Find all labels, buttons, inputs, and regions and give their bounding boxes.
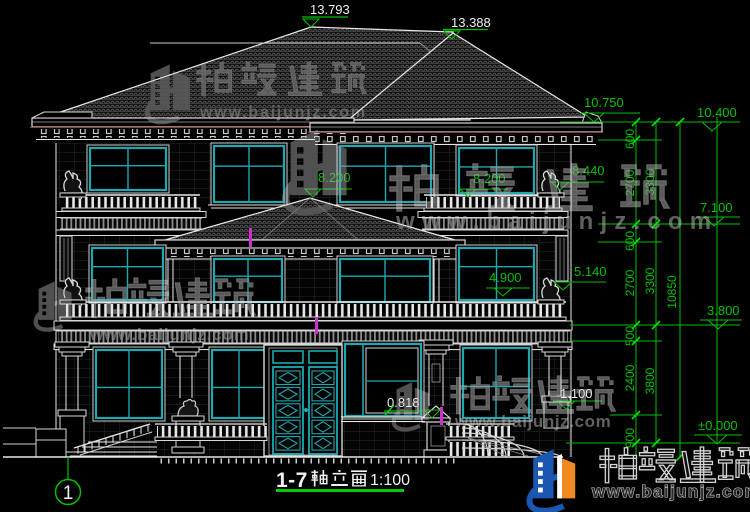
svg-text:www.baijunjz.com: www.baijunjz.com [591, 482, 750, 501]
svg-text:www.baijunjz.com: www.baijunjz.com [395, 208, 718, 235]
svg-text:www.baijunjz.com: www.baijunjz.com [454, 412, 611, 431]
svg-text:3300: 3300 [643, 267, 657, 294]
svg-text:4.900: 4.900 [489, 270, 522, 285]
svg-text:10.400: 10.400 [697, 105, 737, 120]
svg-text:2400: 2400 [623, 364, 637, 391]
svg-text:10.750: 10.750 [584, 95, 624, 110]
svg-text:www.baijunjz.com: www.baijunjz.com [89, 325, 250, 344]
svg-text:3800: 3800 [643, 367, 657, 394]
svg-text:10850: 10850 [665, 275, 679, 309]
svg-text:900: 900 [623, 428, 637, 448]
svg-text:500: 500 [623, 326, 637, 346]
svg-text:±0.000: ±0.000 [698, 418, 738, 433]
svg-text:600: 600 [623, 129, 637, 149]
svg-text:1:100: 1:100 [370, 472, 410, 489]
svg-text:1-7: 1-7 [276, 469, 308, 492]
svg-text:13.388: 13.388 [451, 15, 491, 30]
svg-text:3.800: 3.800 [707, 303, 740, 318]
svg-text:5.140: 5.140 [574, 264, 607, 279]
svg-text:2700: 2700 [623, 269, 637, 296]
svg-text:13.793: 13.793 [310, 2, 350, 17]
svg-text:1: 1 [63, 483, 74, 504]
svg-text:www.baijunjz.com: www.baijunjz.com [199, 104, 367, 121]
